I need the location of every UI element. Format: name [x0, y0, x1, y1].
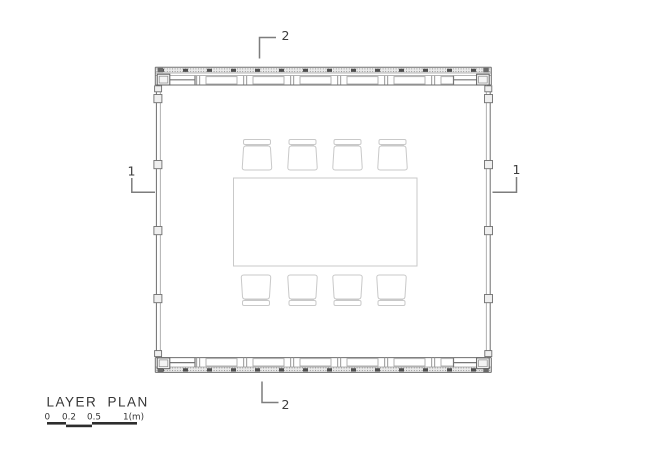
bottom-wall-stipple-band — [155, 368, 491, 373]
top-wall-stipple-band — [155, 68, 491, 73]
title-block: LAYER PLAN 0 0.2 0.5 1(m) — [45, 395, 149, 428]
marker-label: 2 — [282, 28, 290, 43]
bottom-wall — [155, 358, 491, 373]
drawing-canvas: 2 2 1 1 LAYER PLAN 0 0.2 0.5 1(m) — [0, 0, 650, 459]
chair-top-3 — [333, 140, 362, 171]
left-wall — [154, 85, 162, 358]
chair-bottom-3 — [333, 275, 362, 306]
section-marker-1-right: 1 — [493, 162, 521, 192]
marker-label: 2 — [282, 397, 290, 412]
floor-plan-svg: 2 2 1 1 LAYER PLAN 0 0.2 0.5 1(m) — [0, 0, 650, 459]
top-wall-panel-band — [196, 76, 454, 85]
section-marker-2-bottom: 2 — [262, 382, 289, 413]
marker-label: 1 — [128, 164, 136, 179]
chair-top-2 — [288, 140, 317, 171]
bottom-wall-panel-band — [196, 358, 454, 367]
chair-bottom-1 — [241, 275, 270, 306]
scale-label-1m: 1(m) — [123, 413, 144, 423]
scale-label-0: 0 — [45, 413, 51, 423]
section-marker-2-top: 2 — [260, 28, 290, 59]
scale-bar — [47, 422, 137, 427]
section-marker-1-left: 1 — [128, 164, 156, 193]
furniture — [234, 140, 418, 306]
chair-top-1 — [242, 140, 271, 171]
dining-table — [234, 178, 418, 266]
scale-label-0-5: 0.5 — [87, 413, 101, 423]
chair-bottom-4 — [377, 275, 406, 306]
top-wall — [155, 67, 491, 85]
chair-bottom-2 — [288, 275, 317, 306]
right-wall — [485, 85, 493, 358]
chair-top-4 — [378, 140, 407, 171]
plan-title: LAYER PLAN — [47, 395, 149, 410]
marker-label: 1 — [513, 162, 521, 177]
scale-label-0-2: 0.2 — [62, 413, 76, 423]
